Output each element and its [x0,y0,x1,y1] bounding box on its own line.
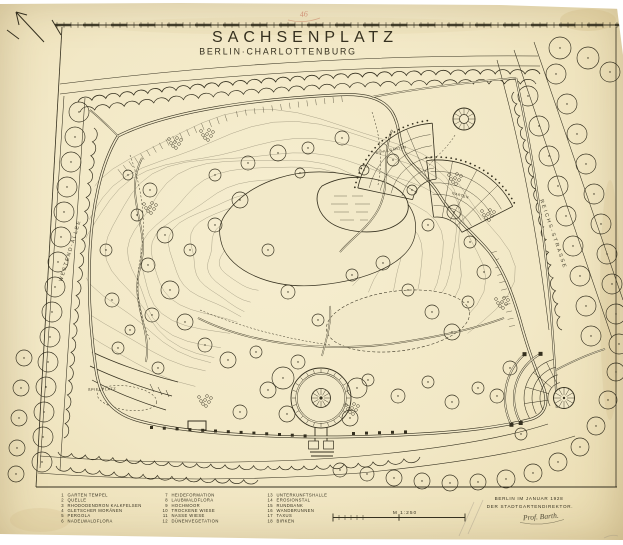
plan-subtitle: BERLIN·CHARLOTTENBURG [199,47,357,57]
tree-center-dot [595,425,596,426]
pergola-post [352,432,355,435]
label-playground: SPIELPLATZ [88,387,117,392]
tree-center-dot [23,357,24,358]
tree-center-dot [392,159,393,160]
pergola-post [188,428,191,431]
street-label-westendallee: WESTEND-ALLEE [58,219,83,283]
fan-border-dot [487,172,489,174]
tree-center-dot [151,314,152,315]
hatch-tick [217,117,219,124]
pergola-post [201,429,204,432]
tree-center-dot [255,351,256,352]
tree-center-dot [611,283,612,284]
fan-border-dot [511,198,513,200]
fan-edge [427,161,434,218]
legend-item-number: 12 [163,518,169,523]
fan-border-dot [502,186,504,188]
tree-center-dot [307,147,308,148]
tree-center-dot [105,249,106,250]
stamp-text: 46 [299,9,308,19]
tree-center-dot [227,359,228,360]
stain [600,180,620,420]
tree-center-dot [397,395,398,396]
north-east-walk [372,78,516,97]
fan-border-dot [474,165,476,167]
tree-center-dot [51,311,52,312]
legend-item: 12DÜNENVEGETATION [163,518,219,523]
imprint-author: DER STADTGARTENDIREKTOR. [487,504,573,509]
tree-center-dot [18,417,19,418]
pergola-post [304,434,307,437]
tree-center-dot [427,381,428,382]
shrub-dot [450,178,453,181]
signature: Prof. Barth. [522,511,559,523]
shrub-dot [207,139,210,142]
tree-center-dot [382,262,383,263]
legend-item-label: NADELWALDFLORA [68,518,113,523]
shrub-dot [357,405,360,408]
hatch-tick [173,136,176,142]
tree-center-dot [349,417,350,418]
hatch-tick [509,325,515,326]
hatch-tick [135,157,139,163]
fan-border-dot [394,131,396,133]
fan-border-dot [505,189,507,191]
tree-center-dot [297,361,298,362]
hatch-tick [187,130,190,136]
tree-center-dot [189,249,190,250]
imprint: BERLIN IM JANUAR 1928 DER STADTGARTENDIR… [487,496,573,524]
tree-center-dot [477,387,478,388]
tree-center-dot [15,473,16,474]
tree-center-dot [590,335,591,336]
tree-row-garland [56,466,258,484]
tree-center-dot [43,411,44,412]
shrub-dot [145,207,148,210]
wall-pier [519,421,523,425]
fan-border-dot [483,170,485,172]
fan-border-dot [495,179,497,181]
tree-center-dot [247,162,248,163]
shrub-dot [355,409,358,412]
tree-center-dot [317,319,318,320]
tree-center-dot [239,199,240,200]
fan-border-dot [455,158,457,160]
tree-center-dot [277,152,278,153]
tree-center-dot [393,477,394,478]
label-fan-right: GARTEN [452,191,470,200]
shrub-dot [460,175,463,178]
park-features [90,172,473,456]
wall-pier [523,352,527,356]
tree-center-dot [157,367,158,368]
entrance-kiosk [324,441,334,449]
legend-item-number: 18 [268,518,274,523]
tree-center-dot [214,224,215,225]
fan-border-dot [417,122,419,124]
fan-border-dot [354,186,356,188]
tree-center-dot [16,447,17,448]
tree-center-dot [41,461,42,462]
tree-center-dot [356,387,357,388]
shrub-dot [493,211,496,214]
shrub-dot [352,413,355,416]
pergola-post [150,426,153,429]
tree-center-dot [607,399,608,400]
footpath [372,112,380,185]
shrub-dot [481,210,484,213]
tree-center-dot [74,136,75,137]
tree-center-dot [532,472,533,473]
fan-border-dot [460,159,462,161]
fountain-center [563,397,565,399]
fountain-center [319,396,322,399]
tree-center-dot [164,234,165,235]
fan-border-dot [371,151,373,153]
tree-center-dot [585,163,586,164]
shrub-dot [147,210,150,213]
pergola-post [214,430,217,433]
shrub-dot [206,395,209,398]
tree-center-dot [204,344,205,345]
fan-border-dot [465,161,467,163]
terrace-arc [524,359,554,418]
tree-center-dot [615,371,616,372]
tree-center-dot [70,161,71,162]
fan-terrace-arc [413,179,437,200]
tree-center-dot [127,174,128,175]
tree-center-dot [184,321,185,322]
shrub-dot [455,183,458,186]
tree-center-dot [548,155,549,156]
shrub-dot [198,396,201,399]
tree-center-dot [299,172,300,173]
pergola-post [163,427,166,430]
shrub-dot [206,133,209,136]
shrub-dot [205,405,208,408]
tree-center-dot [214,174,215,175]
hatch-tick [147,150,151,156]
shrub-dot [143,203,146,206]
fan-bed-divider [457,185,498,225]
tree-row-garland [58,452,268,470]
hatch-tick [236,111,237,117]
shrub-dot [200,400,203,403]
entrance-kiosk [309,441,319,449]
shrub-dot [204,137,207,140]
fan-border-dot [498,182,500,184]
playground-terraces [90,352,178,410]
park-plan-drawing: SACHSENPLATZ BERLIN·CHARLOTTENBURG WESTE… [0,0,623,545]
fan-border-dot [412,123,414,125]
shrub-dot [489,209,492,212]
tree-center-dot [559,47,560,48]
hatch-tick [209,120,211,127]
shrub-dot [458,179,461,182]
pergola-post [265,432,268,435]
hatch-tick [501,289,507,290]
tree-center-dot [587,57,588,58]
tree-center-dot [267,389,268,390]
legend-item-label: BIRKEN [277,518,295,523]
fan-border-dot [445,157,447,159]
tree-center-dot [47,361,48,362]
tree-center-dot [339,469,340,470]
shrub-dot [501,301,504,304]
fan-border-dot [355,182,357,184]
fan-border-dot [425,157,427,159]
tree-center-dot [593,193,594,194]
shrub-dot [180,139,183,142]
scan-edge-bottom [0,534,623,545]
scale-bar: M 1:250 [333,510,465,522]
tree-center-dot [600,223,601,224]
fan-border-dot [385,137,387,139]
shrub-dot [502,307,505,310]
tree-center-dot [579,446,580,447]
tree-row-garland [512,92,562,330]
tree-center-dot [411,189,412,190]
shrub-dot [351,407,354,410]
tree-center-dot [136,214,137,215]
pencil-stroke [604,535,618,538]
tree-center-dot [147,264,148,265]
hatch-tick [499,281,505,282]
shrub-dot [153,208,156,211]
fan-border-dot [365,159,367,161]
wall-pier [509,423,513,427]
tree-center-dot [287,291,288,292]
shrub-dot [212,131,215,134]
fan-border-dot [421,121,423,123]
tree-center-dot [366,473,367,474]
tree-center-dot [509,367,510,368]
tree-center-dot [267,249,268,250]
legend-item-label: DÜNENVEGETATION [172,518,219,523]
tree-center-dot [117,347,118,348]
fan-border-dot [508,193,510,195]
hatch-tick [201,123,204,130]
hatch-tick [272,105,273,111]
fan-edge [432,123,436,179]
tree-center-dot [538,125,539,126]
tree-center-dot [449,482,450,483]
tree-center-dot [483,271,484,272]
tree-center-dot [579,275,580,276]
shrub-dot [483,214,486,217]
tree-center-dot [453,211,454,212]
tree-center-dot [66,186,67,187]
shrub-dot [176,137,179,140]
tree-center-dot [451,401,452,402]
scale-label: M 1:250 [393,510,417,516]
serpentine-walk-core [135,158,147,362]
hatch-tick [324,98,325,104]
tree-center-dot [467,301,468,302]
hatch-tick [180,133,183,139]
hatch-tick [159,143,162,149]
pergola-post [240,431,243,434]
tree-row-garland [268,457,420,470]
fan-border-dot [440,156,442,158]
street-top [60,56,540,94]
fan-border-dot [398,129,400,131]
tree-center-dot [49,336,50,337]
shrub-dot [170,142,173,145]
corner-survey-mark [7,12,61,42]
hatch-tick [289,103,290,109]
tree-center-dot [169,289,170,290]
pergola-post [365,432,368,435]
tree-center-dot [351,274,352,275]
shrub-dot [150,212,153,215]
fan-border-dot [491,175,493,177]
shrub-dot [210,135,213,138]
hatch-tick [194,126,197,132]
dry-meadow-oval [323,282,473,359]
tree-center-dot [149,189,150,190]
pergola-post [176,427,179,430]
pergola-post [378,431,381,434]
fan-border-dot [450,157,452,159]
shrub-dot [495,298,498,301]
tree-center-dot [615,313,616,314]
shrub-dot [505,303,508,306]
shrub-dot [503,297,506,300]
tree-center-dot [407,289,408,290]
shrub-dot [175,147,178,150]
legend: 1GARTEN TEMPEL2QUELLE3RHODODENDRON KALKF… [61,493,327,524]
tree-center-dot [427,224,428,225]
fan-border-dot [363,163,365,165]
fan-border-dot [402,126,404,128]
shrub-dot [208,401,211,404]
shrub-dot [210,397,213,400]
tree-center-dot [63,211,64,212]
tree-center-dot [282,377,283,378]
shrub-dot [487,213,490,216]
hatch-tick [225,115,227,122]
pergola-post [252,432,255,435]
hatch-tick [118,169,122,175]
shrub-dot [155,204,158,207]
hatch-tick [506,311,512,312]
hatch-tick [129,161,133,167]
tree-center-dot [129,329,130,330]
fan-border-dot [389,134,391,136]
fan-border-dot [368,155,370,157]
shrub-dot [507,299,510,302]
fan-border-dot [513,202,515,204]
garden-temple [453,108,475,130]
shrub-dot [202,403,205,406]
legend-item: 18BIRKEN [268,518,295,523]
stain [560,9,616,31]
tree-center-dot [239,411,240,412]
fan-border-dot [374,147,376,149]
shrub-dot [172,145,175,148]
tree-center-dot [555,73,556,74]
tree-center-dot [469,241,470,242]
tree-center-dot [566,103,567,104]
shrub-dot [204,399,207,402]
imprint-place-date: BERLIN IM JANUAR 1928 [495,496,564,501]
tree-center-dot [60,236,61,237]
pergola-post [391,431,394,434]
pergola-post [291,434,294,437]
hatch-tick [307,100,308,106]
shrub-dot [178,143,181,146]
shrub-dot [497,302,500,305]
erosion-valley-path [425,135,455,172]
fan-border-dot [407,125,409,127]
terrace-arc [514,354,540,423]
street-bottom [38,424,575,479]
tree-center-dot [576,133,577,134]
wall-pier [539,352,543,356]
tree-center-dot [54,286,55,287]
tree-center-dot [341,137,342,138]
shrub-dot [208,129,211,132]
shrub-dot [349,411,352,414]
tree-center-dot [431,311,432,312]
tree-center-dot [57,261,58,262]
legend-item-number: 6 [61,518,64,523]
fan-edge [462,206,513,232]
tree-center-dot [505,478,506,479]
tree-center-dot [421,480,422,481]
hatch-tick [508,318,514,319]
tree-center-dot [111,299,112,300]
hatch-tick [316,99,317,105]
scan-edge-top [0,0,623,9]
tree-center-dot [42,436,43,437]
legend-item: 6NADELWALDFLORA [61,518,112,523]
tree-center-dot [451,331,452,332]
fan-border-dot [469,163,471,165]
tree-center-dot [606,253,607,254]
tree-center-dot [527,95,528,96]
tree-center-dot [477,481,478,482]
pencil-stroke [459,500,483,536]
fan-border-dot [381,140,383,142]
hatch-tick [333,97,334,103]
shrub-dot [202,134,205,137]
pergola-post [404,430,407,433]
fan-border-dot [360,168,362,170]
plan-title: SACHSENPLATZ [212,29,398,46]
hatch-tick [153,146,156,152]
tree-center-dot [557,185,558,186]
hatch-tick [491,251,497,253]
shrub-dot [452,181,455,184]
fan-border-dot [430,156,432,158]
shrub-dot [200,130,203,133]
shrub-dot [485,217,488,220]
tree-center-dot [572,245,573,246]
tree-center-dot [585,305,586,306]
pergola-post [227,430,230,433]
tree-center-dot [496,395,497,396]
hatch-tick [342,96,343,102]
east-entrance-walk [556,349,605,370]
fan-border-dot [426,120,428,122]
hatch-tick [281,104,282,110]
fan-border-dot [357,177,359,179]
fan-border-dot [479,167,481,169]
tree-center-dot [363,169,364,170]
hatch-tick [298,102,299,108]
